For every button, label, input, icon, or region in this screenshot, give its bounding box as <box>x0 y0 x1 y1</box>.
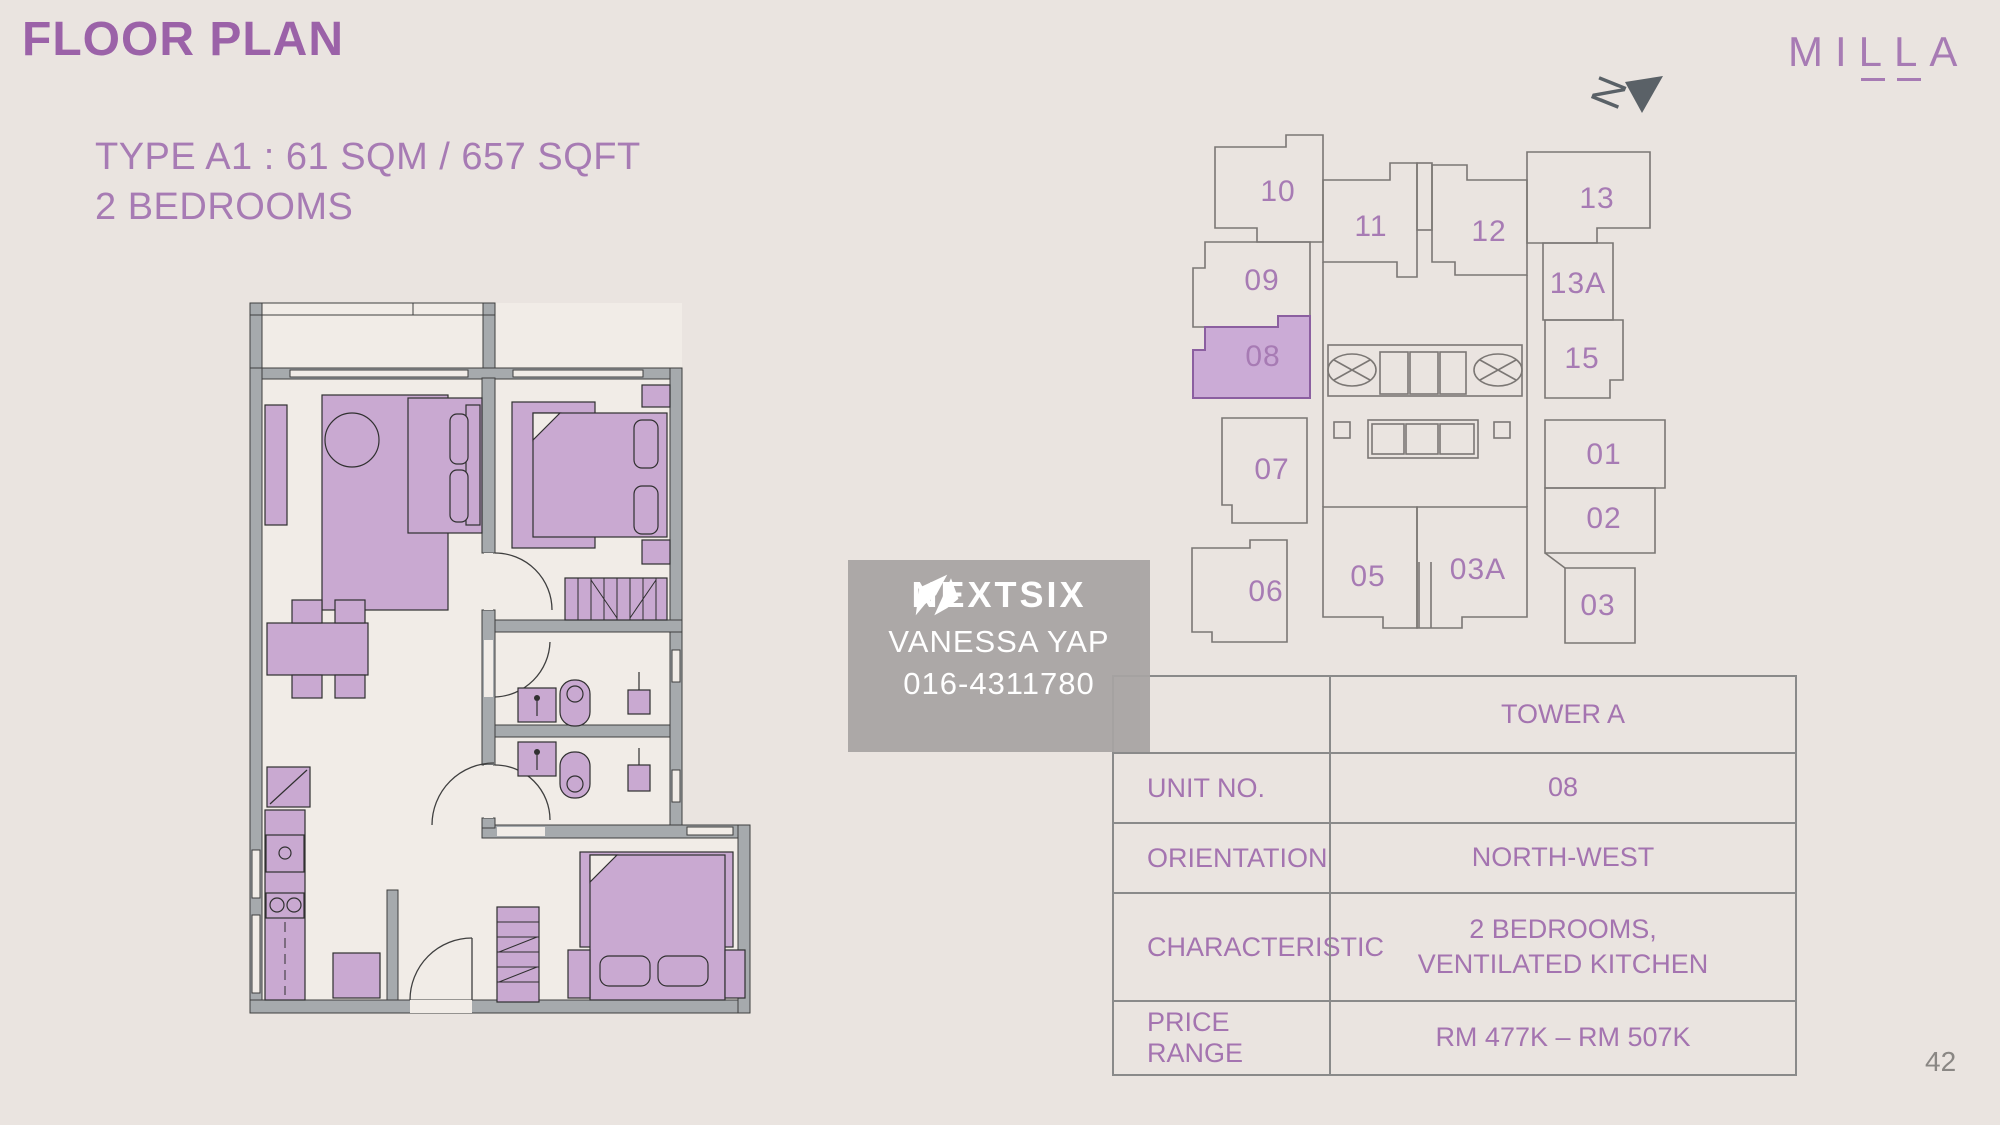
dining-chair <box>292 600 322 623</box>
key-plan-unit-label-07: 07 <box>1254 453 1289 487</box>
table-value-orientation: NORTH-WEST <box>1329 822 1795 892</box>
key-plan-unit-label-15: 15 <box>1564 342 1599 376</box>
page-number: 42 <box>1925 1046 1956 1078</box>
key-plan-unit-label-11: 11 <box>1354 210 1387 244</box>
key-plan-unit-label-12: 12 <box>1471 215 1506 249</box>
logo-underscore-2 <box>1897 78 1921 81</box>
key-plan-unit-label-03: 03 <box>1580 589 1615 623</box>
wall-corridor-3 <box>482 818 495 828</box>
dining-table <box>267 623 368 675</box>
agent-phone: 016-4311780 <box>903 666 1094 702</box>
nextsix-logo-icon <box>911 569 965 621</box>
milla-logo: MILLA <box>1788 28 1968 88</box>
key-plan-unit-label-13A: 13A <box>1550 267 1606 301</box>
lift-shaft <box>1380 352 1408 394</box>
window-bedroom2 <box>687 827 733 835</box>
milla-logo-text: MILLA <box>1788 28 1969 75</box>
floor-plan-drawing <box>225 295 770 1020</box>
key-plan-unit-label-06: 06 <box>1248 575 1283 609</box>
shoe-cabinet <box>333 953 380 998</box>
window-bedroom1 <box>513 370 643 377</box>
wall-right-upper <box>670 368 682 632</box>
door-opening-bedroom2 <box>497 827 545 836</box>
table-value-price-range: RM 477K – RM 507K <box>1329 1000 1795 1074</box>
key-plan-unit-label-02: 02 <box>1586 502 1621 536</box>
dining-chair <box>335 675 365 698</box>
wall-bedroom1-bottom <box>495 620 682 632</box>
bed1-sidetable <box>642 385 670 407</box>
agent-name: VANESSA YAP <box>888 624 1109 660</box>
lift-shaft <box>1410 352 1438 394</box>
key-plan-unit-label-10: 10 <box>1260 175 1295 209</box>
sofa-cushion-2 <box>450 470 468 522</box>
coffee-table <box>325 413 379 467</box>
bedrooms-line: 2 BEDROOMS <box>95 182 641 232</box>
unit-info-table: TOWER A UNIT NO. 08 ORIENTATION NORTH-WE… <box>1112 675 1797 1076</box>
lift-shaft <box>1406 424 1438 454</box>
bath2-toilet <box>560 752 590 798</box>
sliding-door-living <box>290 370 468 377</box>
service-shaft <box>1494 422 1510 438</box>
shower-head-2 <box>628 765 650 791</box>
table-value-characteristic: 2 BEDROOMS, VENTILATED KITCHEN <box>1329 892 1795 1000</box>
bed2-pillow <box>658 956 708 986</box>
window-bath <box>672 650 680 682</box>
service-shaft <box>1334 422 1350 438</box>
stove <box>266 893 304 918</box>
shower-head-1 <box>628 690 650 714</box>
bed2-sidetable <box>568 950 590 998</box>
wardrobe2 <box>497 907 539 1002</box>
balcony-rail <box>250 303 495 315</box>
lift-shaft <box>1440 352 1466 394</box>
table-value-tower: TOWER A <box>1329 677 1795 752</box>
table-label-characteristic: CHARACTERISTIC <box>1114 892 1329 1000</box>
key-plan <box>1180 95 1700 655</box>
key-plan-unit-label-01: 01 <box>1586 438 1621 472</box>
agent-watermark: NEXTSIX VANESSA YAP 016-4311780 <box>848 560 1150 752</box>
door-opening-bath2 <box>484 765 493 818</box>
wall-bath-divider <box>495 725 670 737</box>
wall-foyer-stub <box>387 890 398 1000</box>
table-label-price-range: PRICE RANGE <box>1114 1000 1329 1074</box>
key-plan-unit-label-03A: 03A <box>1450 553 1506 587</box>
page-title: FLOOR PLAN <box>22 12 344 67</box>
dining-chair <box>335 600 365 623</box>
dining-chair <box>292 675 322 698</box>
table-value-unit-no: 08 <box>1329 752 1795 822</box>
key-plan-unit-label-09: 09 <box>1244 264 1279 298</box>
door-opening-entrance <box>410 1000 472 1013</box>
window-bath-2 <box>672 770 680 802</box>
tv-console <box>265 405 287 525</box>
unit-02-03-connector <box>1545 553 1565 568</box>
lift-lobby-lower <box>1368 420 1478 458</box>
wardrobe1 <box>565 578 667 620</box>
key-plan-unit-label-13: 13 <box>1579 182 1614 216</box>
corridor-slot <box>1417 163 1432 230</box>
logo-underscore-1 <box>1861 78 1885 81</box>
unit-type-line: TYPE A1 : 61 SQM / 657 SQFT <box>95 132 641 182</box>
bed1-pillow <box>634 420 658 468</box>
sofa-cushion-1 <box>450 414 468 464</box>
door-opening-bedroom1 <box>484 553 493 610</box>
table-label-unit-no: UNIT NO. <box>1114 752 1329 822</box>
bed2-pillow <box>600 956 650 986</box>
lift-shaft <box>1372 424 1404 454</box>
door-opening-bath1 <box>484 640 493 697</box>
key-plan-unit-label-08: 08 <box>1245 340 1280 374</box>
key-plan-unit-label-05: 05 <box>1350 560 1385 594</box>
unit-type-subtitle: TYPE A1 : 61 SQM / 657 SQFT 2 BEDROOMS <box>95 132 641 232</box>
kitchen-sink <box>266 835 304 872</box>
bed1-pillow <box>634 486 658 534</box>
bath1-toilet <box>560 680 590 726</box>
lift-shaft <box>1440 424 1474 454</box>
wall-corridor <box>482 378 495 553</box>
window-kitchen-1 <box>252 850 260 898</box>
window-kitchen-2 <box>252 915 260 993</box>
bed1-sidetable <box>642 540 670 564</box>
bed2-sidetable <box>725 950 745 998</box>
table-label-orientation: ORIENTATION <box>1114 822 1329 892</box>
